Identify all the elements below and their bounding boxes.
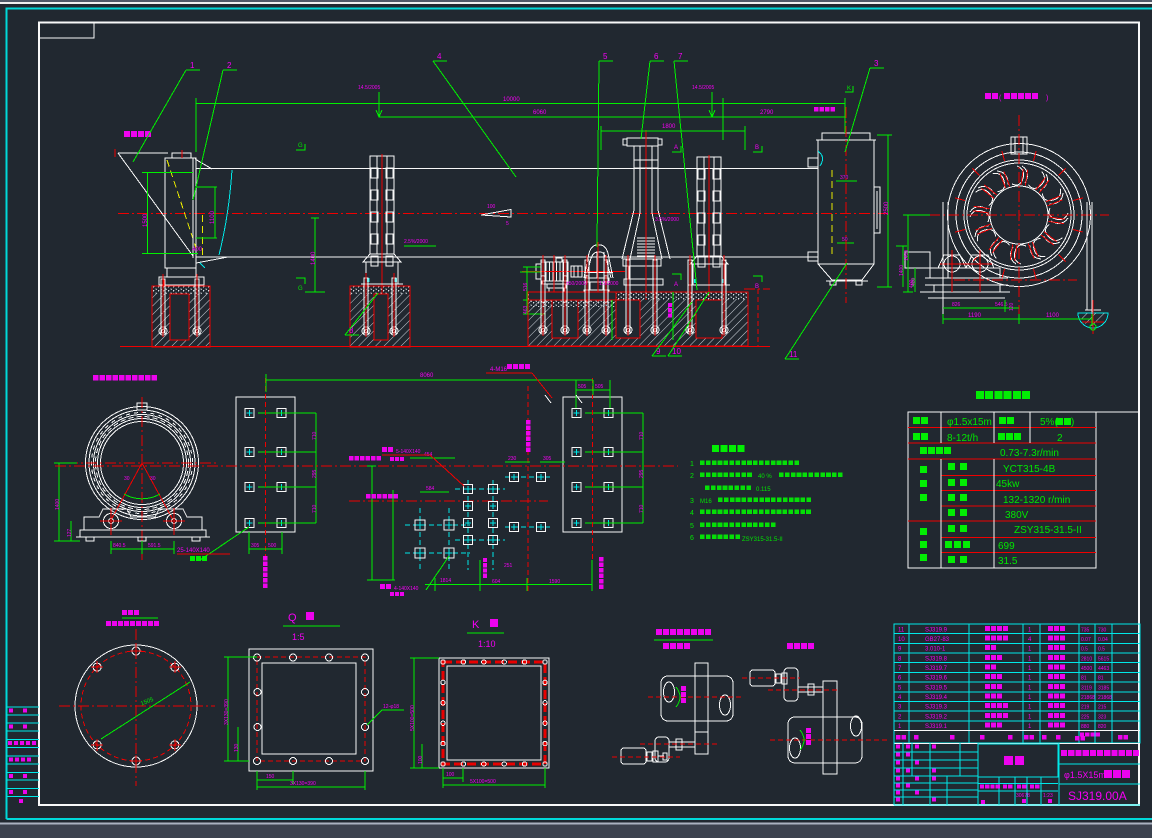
svg-text:820: 820	[1098, 724, 1107, 730]
svg-text:9: 9	[656, 347, 661, 356]
svg-text:1800: 1800	[662, 124, 676, 130]
svg-text:6060: 6060	[533, 110, 547, 116]
svg-text:0.5: 0.5	[1098, 647, 1105, 653]
svg-text:1.5/2000: 1.5/2000	[599, 281, 619, 287]
svg-text:K: K	[847, 86, 851, 92]
svg-text:1100: 1100	[1046, 313, 1060, 319]
svg-text:SJ319.4: SJ319.4	[925, 695, 948, 701]
svg-text:12-φ18: 12-φ18	[383, 704, 399, 710]
svg-text:0.73-7.3r/min: 0.73-7.3r/min	[1000, 448, 1059, 459]
svg-text:604: 604	[492, 579, 501, 585]
svg-text:3185: 3185	[1098, 685, 1109, 691]
svg-text:A: A	[674, 145, 678, 151]
svg-text:SJ319.6: SJ319.6	[925, 676, 948, 682]
svg-text:10000: 10000	[503, 97, 520, 103]
svg-text:ZSY315-31.5-II: ZSY315-31.5-II	[742, 537, 783, 543]
svg-text:1590: 1590	[549, 579, 560, 585]
svg-text:251: 251	[504, 563, 513, 569]
svg-text:132-1320 r/min: 132-1320 r/min	[1003, 495, 1070, 506]
svg-text:5X100=500: 5X100=500	[410, 705, 416, 731]
svg-text:150: 150	[266, 774, 275, 780]
svg-text:81: 81	[1081, 676, 1087, 682]
svg-text:370: 370	[840, 175, 849, 181]
svg-text:B: B	[755, 284, 759, 290]
svg-text:5: 5	[603, 52, 608, 61]
svg-text:30: 30	[124, 476, 130, 482]
svg-text:710: 710	[639, 431, 645, 440]
svg-text:0.07: 0.07	[1081, 637, 1091, 643]
svg-text:3: 3	[690, 498, 694, 505]
svg-text:0.5: 0.5	[1081, 647, 1088, 653]
svg-text:4463: 4463	[1098, 666, 1109, 672]
svg-text:4500: 4500	[1081, 666, 1092, 672]
svg-text:): )	[1046, 95, 1048, 102]
svg-text:2.5%/2000: 2.5%/2000	[404, 239, 428, 245]
svg-text:100: 100	[418, 755, 424, 764]
svg-text:M16: M16	[700, 499, 712, 505]
svg-text:7: 7	[678, 52, 683, 61]
svg-text:1400: 1400	[899, 265, 905, 276]
svg-text:500: 500	[268, 543, 277, 549]
svg-text:1500: 1500	[143, 213, 149, 227]
svg-text:100: 100	[487, 204, 496, 210]
svg-text:40 %: 40 %	[758, 474, 772, 480]
svg-text:3.5%/2000: 3.5%/2000	[655, 217, 679, 223]
svg-text:10: 10	[898, 637, 905, 643]
svg-text:SJ319.5: SJ319.5	[925, 685, 948, 691]
svg-text:3X130=390: 3X130=390	[224, 699, 230, 725]
svg-text:SJ319.2: SJ319.2	[925, 714, 948, 720]
svg-text:4: 4	[437, 52, 442, 61]
svg-text:735: 735	[1081, 627, 1090, 633]
svg-text:SJ319.9: SJ319.9	[925, 627, 948, 633]
svg-text:1814: 1814	[440, 578, 451, 584]
svg-text:1100: 1100	[210, 210, 216, 224]
svg-text:826: 826	[952, 302, 961, 308]
svg-text:45kw: 45kw	[996, 479, 1020, 490]
svg-text:50: 50	[842, 237, 848, 243]
svg-text:G: G	[298, 143, 303, 149]
svg-text:219: 219	[1081, 705, 1090, 711]
svg-text:14.5/2005: 14.5/2005	[358, 85, 380, 91]
svg-text:5-140X140: 5-140X140	[396, 449, 421, 455]
svg-text:400: 400	[192, 247, 203, 253]
svg-text:120: 120	[1009, 302, 1015, 311]
svg-text:2: 2	[690, 473, 694, 480]
svg-text:B: B	[755, 145, 759, 151]
svg-text:710: 710	[639, 504, 645, 513]
svg-text:0.04: 0.04	[1098, 637, 1108, 643]
svg-text:295: 295	[312, 469, 318, 478]
svg-text:2: 2	[1057, 433, 1063, 444]
svg-text:5: 5	[506, 221, 509, 227]
svg-text:5%(: 5%(	[1040, 417, 1058, 428]
svg-text:5: 5	[690, 523, 694, 530]
svg-text:1400: 1400	[311, 251, 317, 265]
svg-text:30: 30	[150, 476, 156, 482]
svg-text:5X100=500: 5X100=500	[470, 779, 496, 785]
svg-text:2790: 2790	[760, 110, 774, 116]
svg-text:3119: 3119	[1081, 685, 1092, 691]
svg-text:2500: 2500	[884, 201, 890, 215]
svg-text:A: A	[674, 282, 678, 288]
svg-text:380V: 380V	[1005, 510, 1029, 521]
svg-text:K: K	[472, 619, 480, 631]
svg-text:1:10: 1:10	[478, 639, 496, 649]
svg-text:5615: 5615	[1098, 656, 1109, 662]
svg-text:±50/2000: ±50/2000	[566, 281, 587, 287]
svg-text:21868: 21868	[1081, 695, 1095, 701]
svg-text:SJ319.3: SJ319.3	[925, 705, 948, 711]
svg-text:21868: 21868	[1098, 695, 1112, 701]
svg-text:730: 730	[1098, 627, 1107, 633]
svg-text:4: 4	[690, 510, 694, 517]
svg-text:SJ319.8: SJ319.8	[925, 656, 948, 662]
svg-text:2: 2	[227, 61, 232, 70]
svg-text:1: 1	[690, 461, 694, 468]
svg-text:225: 225	[1081, 714, 1090, 720]
svg-text:505: 505	[595, 384, 604, 390]
svg-text:1: 1	[190, 61, 195, 70]
svg-text:): )	[1071, 417, 1074, 428]
svg-text:3.010-1: 3.010-1	[925, 647, 946, 653]
svg-text:295: 295	[639, 469, 645, 478]
svg-text:591.5: 591.5	[148, 543, 161, 549]
svg-text:8-12t/h: 8-12t/h	[947, 433, 978, 444]
svg-text:840.5: 840.5	[113, 543, 126, 549]
svg-text:6: 6	[654, 52, 659, 61]
svg-text:φ1.5x15m: φ1.5x15m	[947, 417, 992, 428]
svg-text:505: 505	[578, 384, 587, 390]
svg-text:30678: 30678	[1016, 793, 1030, 799]
svg-text:81: 81	[1098, 676, 1104, 682]
svg-text:GB27-83: GB27-83	[925, 637, 950, 643]
svg-text:G: G	[298, 286, 303, 292]
svg-text:31.5: 31.5	[998, 556, 1018, 567]
svg-text:516: 516	[523, 282, 529, 291]
svg-text:14.5/2005: 14.5/2005	[692, 85, 714, 91]
svg-text:710: 710	[312, 431, 318, 440]
svg-text:Q: Q	[288, 612, 297, 624]
svg-text:100: 100	[446, 772, 455, 778]
svg-text:4-140X140: 4-140X140	[394, 586, 419, 592]
svg-text:130: 130	[234, 743, 240, 752]
svg-text:584: 584	[426, 486, 435, 492]
svg-text:127: 127	[67, 528, 73, 537]
svg-text:3X130=390: 3X130=390	[290, 781, 316, 787]
svg-text:215: 215	[1098, 705, 1107, 711]
svg-text:ZSY315-31.5-II: ZSY315-31.5-II	[1014, 525, 1082, 536]
svg-text:8060: 8060	[420, 373, 434, 379]
svg-text:YCT315-4B: YCT315-4B	[1003, 464, 1056, 475]
svg-text:1:23: 1:23	[1043, 793, 1053, 799]
svg-text:25-140X140: 25-140X140	[177, 548, 210, 554]
svg-text:SJ319.7: SJ319.7	[925, 666, 948, 672]
svg-text:699: 699	[998, 541, 1015, 552]
svg-text:0.115: 0.115	[756, 487, 771, 493]
svg-text:4-M16: 4-M16	[490, 367, 508, 373]
svg-text:6: 6	[690, 535, 694, 542]
svg-text:1400: 1400	[55, 499, 61, 510]
svg-text:305: 305	[543, 456, 552, 462]
svg-text:1:5: 1:5	[292, 632, 305, 642]
svg-text:305: 305	[251, 543, 260, 549]
svg-text:φ1.5X15m: φ1.5X15m	[1064, 770, 1106, 780]
svg-text:710: 710	[312, 504, 318, 513]
svg-text:2810: 2810	[1081, 656, 1092, 662]
svg-text:11: 11	[898, 627, 905, 633]
svg-text:400: 400	[911, 277, 917, 286]
svg-text:323: 323	[1098, 714, 1107, 720]
svg-text:3: 3	[874, 59, 879, 68]
svg-text:SJ319.1: SJ319.1	[925, 724, 948, 730]
svg-text:880: 880	[1081, 724, 1090, 730]
svg-text:SJ319.00A: SJ319.00A	[1068, 789, 1127, 803]
svg-text:1190: 1190	[968, 313, 982, 319]
svg-text:546.5: 546.5	[995, 302, 1008, 308]
svg-text:1400: 1400	[904, 250, 910, 261]
svg-text:230: 230	[508, 456, 517, 462]
